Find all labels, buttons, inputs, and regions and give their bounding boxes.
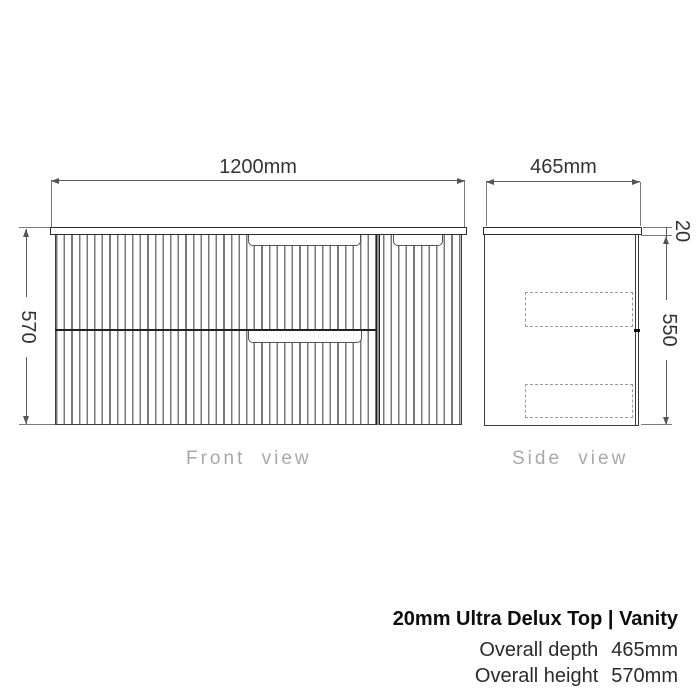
door-handle-notch: [393, 235, 443, 246]
spec-value: 570mm: [611, 665, 678, 688]
extension-line: [643, 227, 672, 228]
spec-row-height: Overall height 570mm: [393, 665, 678, 688]
extension-line: [51, 181, 52, 227]
arrowhead-icon: [486, 179, 494, 185]
extension-line: [19, 424, 55, 425]
spec-label: Overall height: [475, 665, 598, 688]
front-height-dimension-label: 570: [18, 297, 38, 357]
extension-line: [641, 424, 672, 425]
technical-drawing-canvas: 1200mm 570 Front view 465mm: [0, 0, 700, 700]
side-cabinet-height-label: 550: [659, 300, 679, 360]
front-width-dimension-line: [51, 180, 465, 181]
front-view-caption: Front view: [186, 448, 312, 470]
front-countertop: [50, 227, 467, 235]
arrowhead-icon: [51, 178, 59, 184]
side-countertop: [483, 227, 642, 235]
side-top-thickness-dimension-line: [666, 227, 667, 236]
arrowhead-icon: [23, 229, 29, 237]
front-width-dimension-label: 1200mm: [51, 157, 465, 177]
side-drawer-gap-mark: [634, 329, 640, 332]
spec-value: 465mm: [611, 639, 678, 662]
arrowhead-icon: [23, 416, 29, 424]
bottom-drawer-handle-notch: [248, 331, 362, 343]
top-drawer-handle-notch: [248, 235, 361, 246]
hidden-drawer-box-bottom: [525, 384, 633, 418]
arrowhead-icon: [663, 236, 669, 244]
product-spec-block: 20mm Ultra Delux Top | Vanity Overall de…: [393, 608, 678, 688]
front-drawer-door-divider: [376, 235, 380, 425]
arrowhead-icon: [632, 179, 640, 185]
spec-row-depth: Overall depth 465mm: [393, 639, 678, 662]
extension-line: [486, 182, 487, 226]
side-depth-dimension-label: 465mm: [486, 157, 641, 177]
side-depth-dimension-line: [486, 181, 640, 182]
extension-line: [640, 182, 641, 226]
extension-line: [464, 181, 465, 227]
spec-label: Overall depth: [479, 639, 598, 662]
hidden-drawer-box-top: [525, 292, 633, 327]
side-top-thickness-label: 20: [672, 211, 692, 251]
side-view-caption: Side view: [512, 448, 628, 470]
extension-line: [19, 227, 50, 228]
product-title: 20mm Ultra Delux Top | Vanity: [393, 608, 678, 631]
